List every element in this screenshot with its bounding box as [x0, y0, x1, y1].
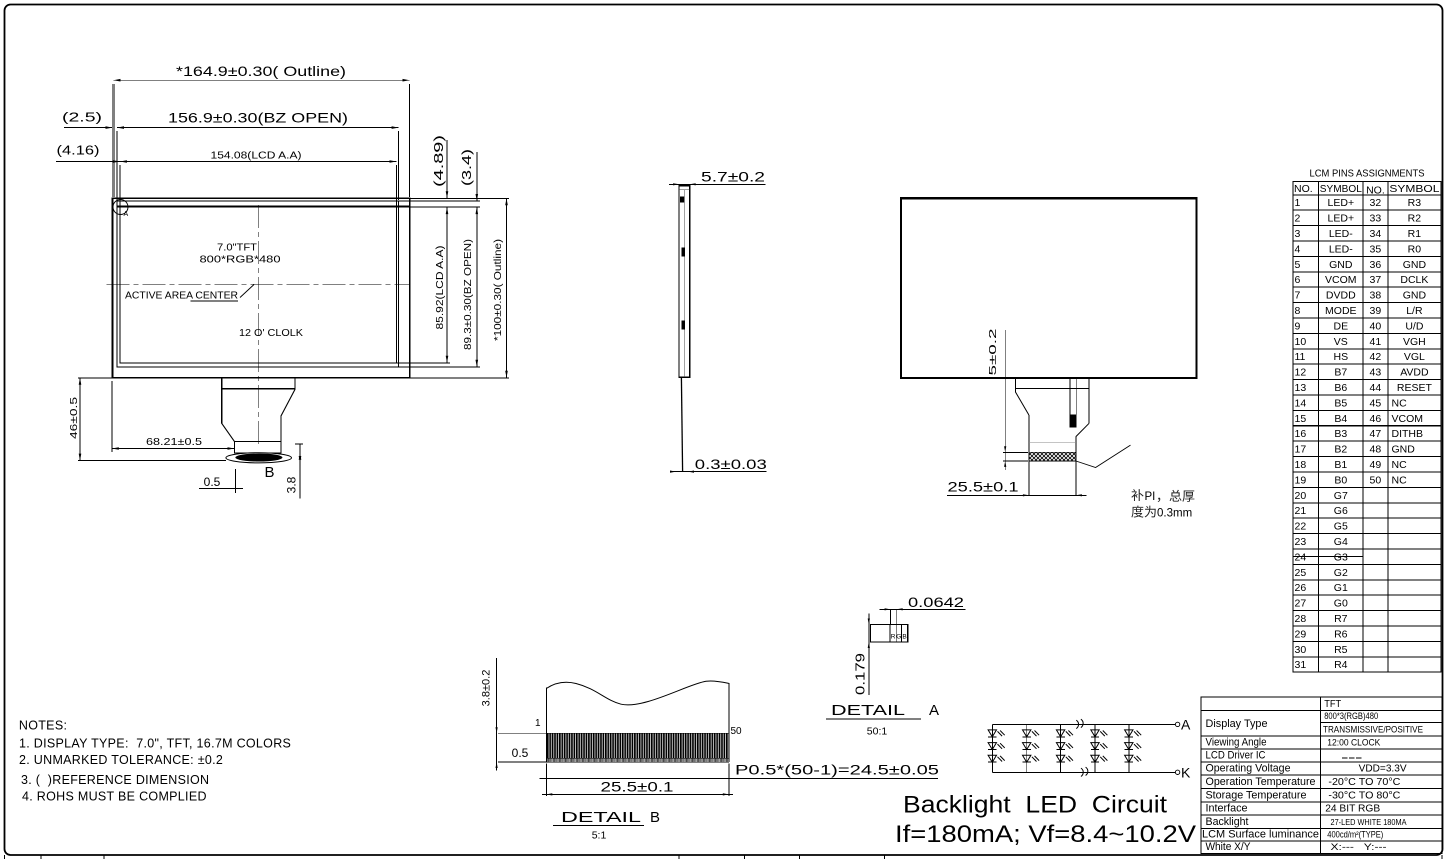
svg-text:4. ROHS MUST BE COMPLIED: 4. ROHS MUST BE COMPLIED: [22, 790, 207, 804]
svg-text:LED+: LED+: [1328, 213, 1355, 225]
svg-text:DETAIL: DETAIL: [831, 702, 905, 719]
svg-text:(2.5): (2.5): [62, 110, 102, 125]
svg-text:White X/Y: White X/Y: [1206, 841, 1252, 853]
svg-text:37: 37: [1370, 274, 1382, 286]
svg-text:*100±0.30( Outline): *100±0.30( Outline): [492, 239, 504, 341]
svg-text:G6: G6: [1334, 505, 1348, 517]
svg-text:R: R: [891, 634, 896, 641]
svg-text:44: 44: [1370, 382, 1382, 394]
svg-text:DITHB: DITHB: [1392, 428, 1424, 440]
svg-text:46: 46: [1370, 413, 1382, 425]
svg-text:22: 22: [1295, 521, 1307, 533]
svg-text:DE: DE: [1334, 320, 1349, 332]
svg-text:1: 1: [1295, 197, 1301, 209]
svg-text:21: 21: [1295, 505, 1307, 517]
svg-text:3.8: 3.8: [285, 476, 299, 493]
svg-text:2: 2: [1295, 213, 1301, 225]
svg-text:2. UNMARKED TOLERANCE: ±0.2: 2. UNMARKED TOLERANCE: ±0.2: [19, 753, 223, 767]
svg-text:4: 4: [1295, 243, 1301, 255]
svg-text:5.7±0.2: 5.7±0.2: [701, 169, 765, 185]
svg-text:R6: R6: [1334, 628, 1348, 640]
svg-text:12 O' CLOLK: 12 O' CLOLK: [239, 327, 303, 339]
svg-text:39: 39: [1370, 305, 1382, 317]
svg-text:B1: B1: [1334, 459, 1347, 471]
svg-text:DVDD: DVDD: [1326, 290, 1356, 302]
svg-text:35: 35: [1370, 243, 1382, 255]
svg-text:0.5: 0.5: [512, 746, 529, 760]
svg-text:46±0.5: 46±0.5: [68, 397, 80, 439]
svg-text:38: 38: [1370, 290, 1382, 302]
svg-text:K: K: [1181, 765, 1191, 781]
svg-text:DCLK: DCLK: [1400, 274, 1428, 286]
svg-text:5: 5: [1295, 259, 1301, 271]
svg-text:SYMBOL: SYMBOL: [1389, 183, 1439, 195]
svg-text:0.3mm: 0.3mm: [1157, 508, 1192, 520]
svg-text:If=180mA; Vf=8.4~10.2V: If=180mA; Vf=8.4~10.2V: [895, 821, 1197, 848]
svg-text:G5: G5: [1334, 521, 1348, 533]
svg-text:Backlight LED Circuit: Backlight LED Circuit: [903, 792, 1167, 819]
svg-text:VGH: VGH: [1403, 336, 1426, 348]
svg-text:5±0.2: 5±0.2: [987, 328, 999, 375]
svg-text:LCD Driver IC: LCD Driver IC: [1206, 749, 1266, 761]
svg-text:LED-: LED-: [1329, 243, 1353, 255]
svg-text:85.92(LCD A.A): 85.92(LCD A.A): [434, 246, 446, 330]
svg-text:*164.9±0.30( Outline): *164.9±0.30( Outline): [176, 63, 346, 79]
svg-text:27-LED WHITE 180MA: 27-LED WHITE 180MA: [1331, 817, 1407, 827]
svg-text:13: 13: [1295, 382, 1307, 394]
svg-text:27: 27: [1295, 598, 1307, 610]
svg-text:NO.: NO.: [1294, 183, 1313, 195]
svg-text:SYMBOL: SYMBOL: [1320, 183, 1362, 195]
svg-text:0.0642: 0.0642: [908, 594, 964, 610]
svg-text:30: 30: [1295, 644, 1307, 656]
svg-text:11: 11: [1295, 351, 1306, 363]
svg-text:24 BIT RGB: 24 BIT RGB: [1325, 802, 1380, 814]
svg-text:B: B: [265, 464, 275, 481]
svg-text:MODE: MODE: [1325, 305, 1357, 317]
svg-text:B5: B5: [1334, 397, 1347, 409]
svg-text:LED-: LED-: [1329, 228, 1353, 240]
svg-text:Operating Voltage: Operating Voltage: [1206, 763, 1291, 775]
svg-text:B: B: [902, 634, 906, 641]
svg-text:43: 43: [1370, 367, 1382, 379]
svg-text:40: 40: [1370, 320, 1382, 332]
svg-text:156.9±0.30(BZ OPEN): 156.9±0.30(BZ OPEN): [168, 110, 348, 126]
svg-text:24: 24: [1295, 551, 1307, 563]
svg-text:45: 45: [1370, 397, 1382, 409]
svg-text:G4: G4: [1334, 536, 1348, 548]
svg-text:PI: PI: [1145, 491, 1156, 503]
svg-text:R0: R0: [1408, 243, 1422, 255]
svg-text:29: 29: [1295, 628, 1307, 640]
svg-text:VDD=3.3V: VDD=3.3V: [1359, 763, 1407, 775]
svg-text:B: B: [650, 809, 660, 826]
svg-text:34: 34: [1370, 228, 1382, 240]
svg-text:14: 14: [1295, 397, 1307, 409]
svg-text:GND: GND: [1403, 259, 1427, 271]
svg-text:20: 20: [1295, 490, 1307, 502]
svg-text:R7: R7: [1334, 613, 1348, 625]
svg-text:HS: HS: [1334, 351, 1349, 363]
svg-text:(4.16): (4.16): [57, 143, 100, 158]
svg-text:1. DISPLAY TYPE: 7.0", TFT, 1: 1. DISPLAY TYPE: 7.0", TFT, 16.7M COLORS: [19, 737, 291, 751]
svg-text:10: 10: [1295, 336, 1307, 348]
svg-text:-20°C TO 70°C: -20°C TO 70°C: [1328, 776, 1400, 788]
svg-text:23: 23: [1295, 536, 1307, 548]
svg-text:47: 47: [1370, 428, 1382, 440]
svg-text:36: 36: [1370, 259, 1382, 271]
svg-text:B0: B0: [1334, 474, 1347, 486]
svg-text:12: 12: [1295, 367, 1307, 379]
svg-text:L/R: L/R: [1406, 305, 1423, 317]
svg-text:Viewing Angle: Viewing Angle: [1206, 736, 1267, 748]
svg-text:LCM Surface luminance: LCM Surface luminance: [1202, 828, 1319, 840]
svg-text:0.5: 0.5: [204, 475, 221, 489]
svg-text:7.0"TFT: 7.0"TFT: [217, 242, 258, 254]
svg-text:GND: GND: [1329, 259, 1353, 271]
svg-text:NC: NC: [1392, 397, 1408, 409]
svg-text:B6: B6: [1334, 382, 1347, 394]
svg-text:50: 50: [1370, 474, 1382, 486]
svg-text:B3: B3: [1334, 428, 1347, 440]
svg-text:50: 50: [731, 726, 743, 737]
svg-text:NO.: NO.: [1366, 185, 1385, 197]
svg-text:31: 31: [1295, 659, 1307, 671]
svg-text:Backlight: Backlight: [1206, 816, 1249, 828]
svg-text:49: 49: [1370, 459, 1382, 471]
svg-text:26: 26: [1295, 582, 1307, 594]
svg-text:P0.5*(50-1)=24.5±0.05: P0.5*(50-1)=24.5±0.05: [735, 762, 939, 778]
svg-text:VS: VS: [1334, 336, 1348, 348]
svg-text:19: 19: [1295, 474, 1307, 486]
svg-text:R1: R1: [1408, 228, 1422, 240]
svg-text:0.3±0.03: 0.3±0.03: [695, 456, 767, 472]
svg-text:41: 41: [1370, 336, 1382, 348]
svg-text:A: A: [1181, 717, 1191, 733]
svg-text:GND: GND: [1392, 444, 1416, 456]
svg-text:17: 17: [1295, 444, 1307, 456]
svg-text:G3: G3: [1334, 551, 1348, 563]
svg-text:RESET: RESET: [1397, 382, 1433, 394]
svg-text:25: 25: [1295, 567, 1307, 579]
svg-text:15: 15: [1295, 413, 1307, 425]
svg-text:ACTIVE AREA CENTER: ACTIVE AREA CENTER: [125, 290, 238, 302]
svg-text:68.21±0.5: 68.21±0.5: [146, 436, 202, 448]
svg-text:0.179: 0.179: [853, 653, 868, 695]
svg-text:LCM PINS ASSIGNMENTS: LCM PINS ASSIGNMENTS: [1310, 168, 1425, 180]
svg-text:3: 3: [1295, 228, 1301, 240]
svg-text:R4: R4: [1334, 659, 1348, 671]
svg-text:AVDD: AVDD: [1400, 367, 1429, 379]
svg-text:LED+: LED+: [1328, 197, 1355, 209]
svg-text:TFT: TFT: [1324, 698, 1342, 710]
svg-text:33: 33: [1370, 213, 1382, 225]
svg-text:7: 7: [1295, 290, 1301, 302]
svg-text:6: 6: [1295, 274, 1301, 286]
svg-text:G1: G1: [1334, 582, 1348, 594]
svg-text:NC: NC: [1392, 474, 1408, 486]
svg-text:25.5±0.1: 25.5±0.1: [948, 479, 1019, 495]
svg-text:3. ( )REFERENCE DIMENSION: 3. ( )REFERENCE DIMENSION: [21, 773, 209, 787]
svg-text:Display Type: Display Type: [1206, 718, 1268, 730]
svg-text:89.3±0.30(BZ OPEN): 89.3±0.30(BZ OPEN): [462, 239, 474, 350]
svg-text:G: G: [896, 634, 901, 641]
svg-text:400cd/m²(TYPE): 400cd/m²(TYPE): [1327, 829, 1383, 839]
svg-text:A: A: [124, 211, 129, 218]
svg-text:42: 42: [1370, 351, 1382, 363]
svg-text:154.08(LCD A.A): 154.08(LCD A.A): [211, 150, 302, 162]
svg-text:800*3(RGB)480: 800*3(RGB)480: [1324, 711, 1378, 722]
svg-text:DETAIL: DETAIL: [561, 809, 641, 826]
svg-text:B7: B7: [1334, 367, 1347, 379]
svg-text:3.8±0.2: 3.8±0.2: [481, 670, 493, 707]
svg-text:800*RGB*480: 800*RGB*480: [200, 254, 281, 266]
svg-text:25.5±0.1: 25.5±0.1: [601, 779, 674, 795]
svg-text:28: 28: [1295, 613, 1307, 625]
svg-text:NC: NC: [1392, 459, 1408, 471]
svg-text:Storage Temperature: Storage Temperature: [1206, 789, 1307, 801]
svg-text:Interface: Interface: [1206, 802, 1248, 814]
svg-text:(3.4): (3.4): [459, 149, 474, 186]
svg-text:16: 16: [1295, 428, 1307, 440]
svg-text:18: 18: [1295, 459, 1307, 471]
svg-text:48: 48: [1370, 444, 1382, 456]
svg-text:32: 32: [1370, 197, 1382, 209]
svg-text:8: 8: [1295, 305, 1301, 317]
svg-text:50:1: 50:1: [867, 726, 888, 738]
svg-text:B2: B2: [1334, 444, 1347, 456]
svg-text:R5: R5: [1334, 644, 1348, 656]
svg-text:R2: R2: [1408, 213, 1422, 225]
svg-text:12:00 CLOCK: 12:00 CLOCK: [1327, 737, 1381, 748]
svg-text:VGL: VGL: [1404, 351, 1425, 363]
svg-text:U/D: U/D: [1405, 320, 1424, 332]
svg-text:G0: G0: [1334, 598, 1348, 610]
svg-text:X:--- Y:---: X:--- Y:---: [1331, 842, 1387, 852]
svg-text:VCOM: VCOM: [1325, 274, 1357, 286]
svg-text:A: A: [929, 702, 939, 719]
svg-text:NOTES:: NOTES:: [19, 719, 67, 733]
svg-text:R3: R3: [1408, 197, 1422, 209]
svg-text:(4.89): (4.89): [431, 135, 446, 187]
svg-text:G2: G2: [1334, 567, 1348, 579]
svg-text:TRANSMISSIVE/POSITIVE: TRANSMISSIVE/POSITIVE: [1323, 724, 1423, 735]
svg-text:5:1: 5:1: [592, 830, 607, 842]
svg-text:9: 9: [1295, 320, 1301, 332]
svg-text:-30°C TO 80°C: -30°C TO 80°C: [1328, 789, 1400, 801]
svg-text:1: 1: [535, 718, 541, 729]
svg-text:Operation Temperature: Operation Temperature: [1206, 776, 1316, 788]
svg-text:B4: B4: [1334, 413, 1347, 425]
svg-text:VCOM: VCOM: [1392, 413, 1424, 425]
svg-text:GND: GND: [1403, 290, 1427, 302]
svg-text:G7: G7: [1334, 490, 1348, 502]
